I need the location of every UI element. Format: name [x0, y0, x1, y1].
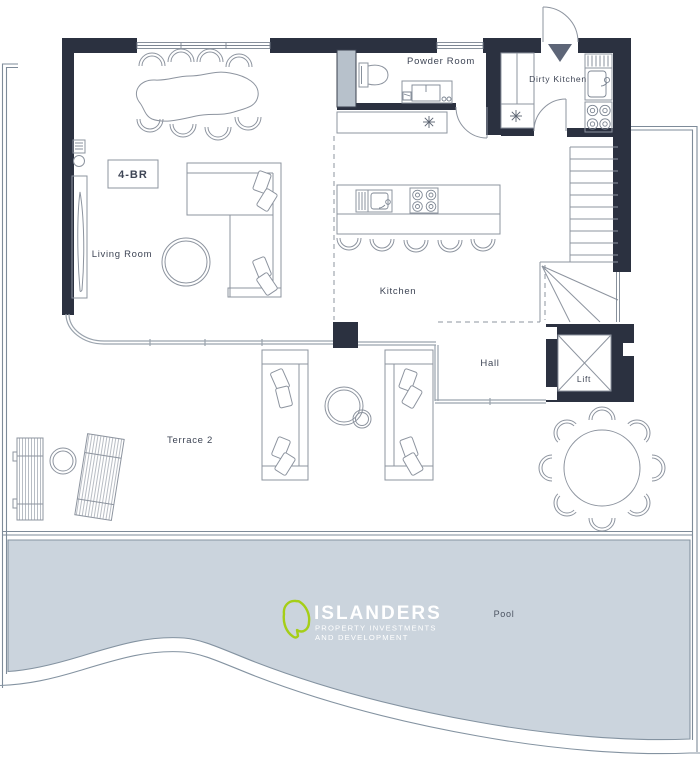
logo-tagline-1: PROPERTY INVESTMENTS	[315, 624, 437, 633]
floor-plan-drawing: 4-BR	[0, 0, 700, 758]
unit-type-label: 4-BR	[118, 169, 148, 181]
nesting-tables	[325, 387, 371, 428]
dining-table	[136, 49, 261, 140]
living-room-window	[137, 43, 270, 49]
stairs	[540, 147, 620, 322]
bar-stools	[337, 238, 495, 252]
powder-room-window	[437, 43, 483, 49]
powder-room-door-arc	[456, 107, 487, 138]
kitchen-counter	[337, 112, 447, 133]
living-room: 4-BR	[72, 49, 281, 298]
dirty-kitchen-cooktop	[585, 102, 612, 132]
kitchen-island	[337, 185, 500, 234]
tv-unit	[72, 140, 87, 298]
entrance	[543, 7, 578, 62]
sun-lounger	[75, 434, 124, 521]
outdoor-sofa	[262, 350, 308, 480]
outdoor-sofa	[385, 350, 433, 480]
toilet	[359, 63, 388, 87]
vanity-sink	[402, 81, 452, 103]
kitchen-label: Kitchen	[380, 286, 417, 297]
kitchen	[334, 112, 540, 322]
outdoor-dining-table	[539, 407, 665, 531]
dirty-kitchen-door-arc	[534, 99, 566, 131]
stair-winder	[540, 262, 620, 322]
logo-name: ISLANDERS	[314, 603, 442, 624]
lift-label: Lift	[577, 374, 591, 384]
tv-icon	[78, 192, 84, 292]
coffee-table	[162, 238, 210, 286]
glass-walls	[66, 314, 546, 405]
pool-label: Pool	[494, 609, 515, 619]
dirty-kitchen-sink	[585, 54, 612, 100]
lift	[546, 324, 634, 402]
logo-tagline-2: AND DEVELOPMENT	[315, 633, 409, 642]
hall-label: Hall	[480, 358, 499, 369]
sun-lounger	[13, 438, 43, 520]
terrace-label: Terrace 2	[167, 435, 213, 446]
entrance-arrow-icon	[548, 44, 572, 62]
side-table	[50, 448, 76, 474]
dirty-kitchen-label: Dirty Kitchen	[529, 74, 587, 84]
pool-area	[0, 540, 700, 754]
utility-closet	[501, 53, 534, 128]
entrance-door-arc	[543, 7, 578, 42]
floor-plan-page: 4-BR	[0, 0, 700, 758]
unit-type-badge: 4-BR	[108, 160, 158, 188]
powder-room-label: Powder Room	[407, 56, 475, 67]
dirty-kitchen	[534, 54, 612, 132]
snowflake-icon	[510, 110, 522, 122]
living-room-label: Living Room	[92, 249, 153, 260]
shower-panel	[337, 50, 356, 107]
